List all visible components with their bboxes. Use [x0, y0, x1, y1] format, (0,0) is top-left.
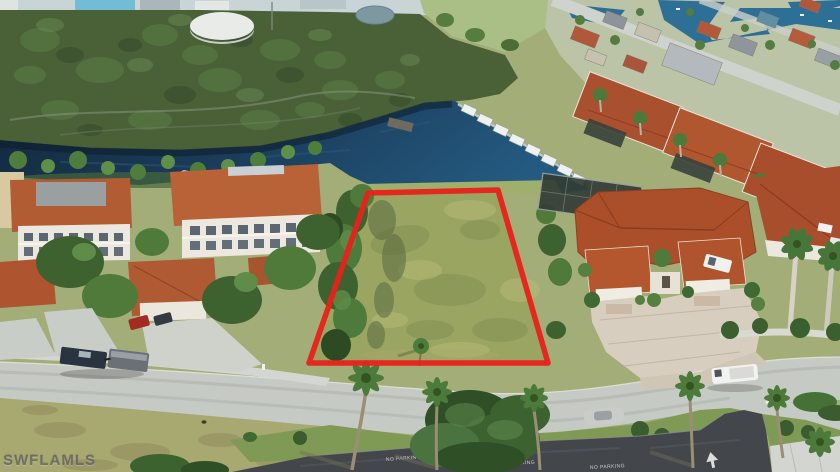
bird-on-road: [202, 420, 207, 424]
mailbox: [262, 364, 265, 370]
aerial-photo: NO PARKING NO PARKING NO PARKING: [0, 0, 840, 472]
utility-dome: [243, 432, 257, 442]
silver-car: [583, 407, 624, 426]
aerial-photo-scene: NO PARKING NO PARKING NO PARKING: [0, 0, 840, 472]
dome-building: [190, 12, 254, 40]
watermark: SWFLAMLS: [3, 452, 96, 469]
round-roof-house: [356, 6, 394, 24]
